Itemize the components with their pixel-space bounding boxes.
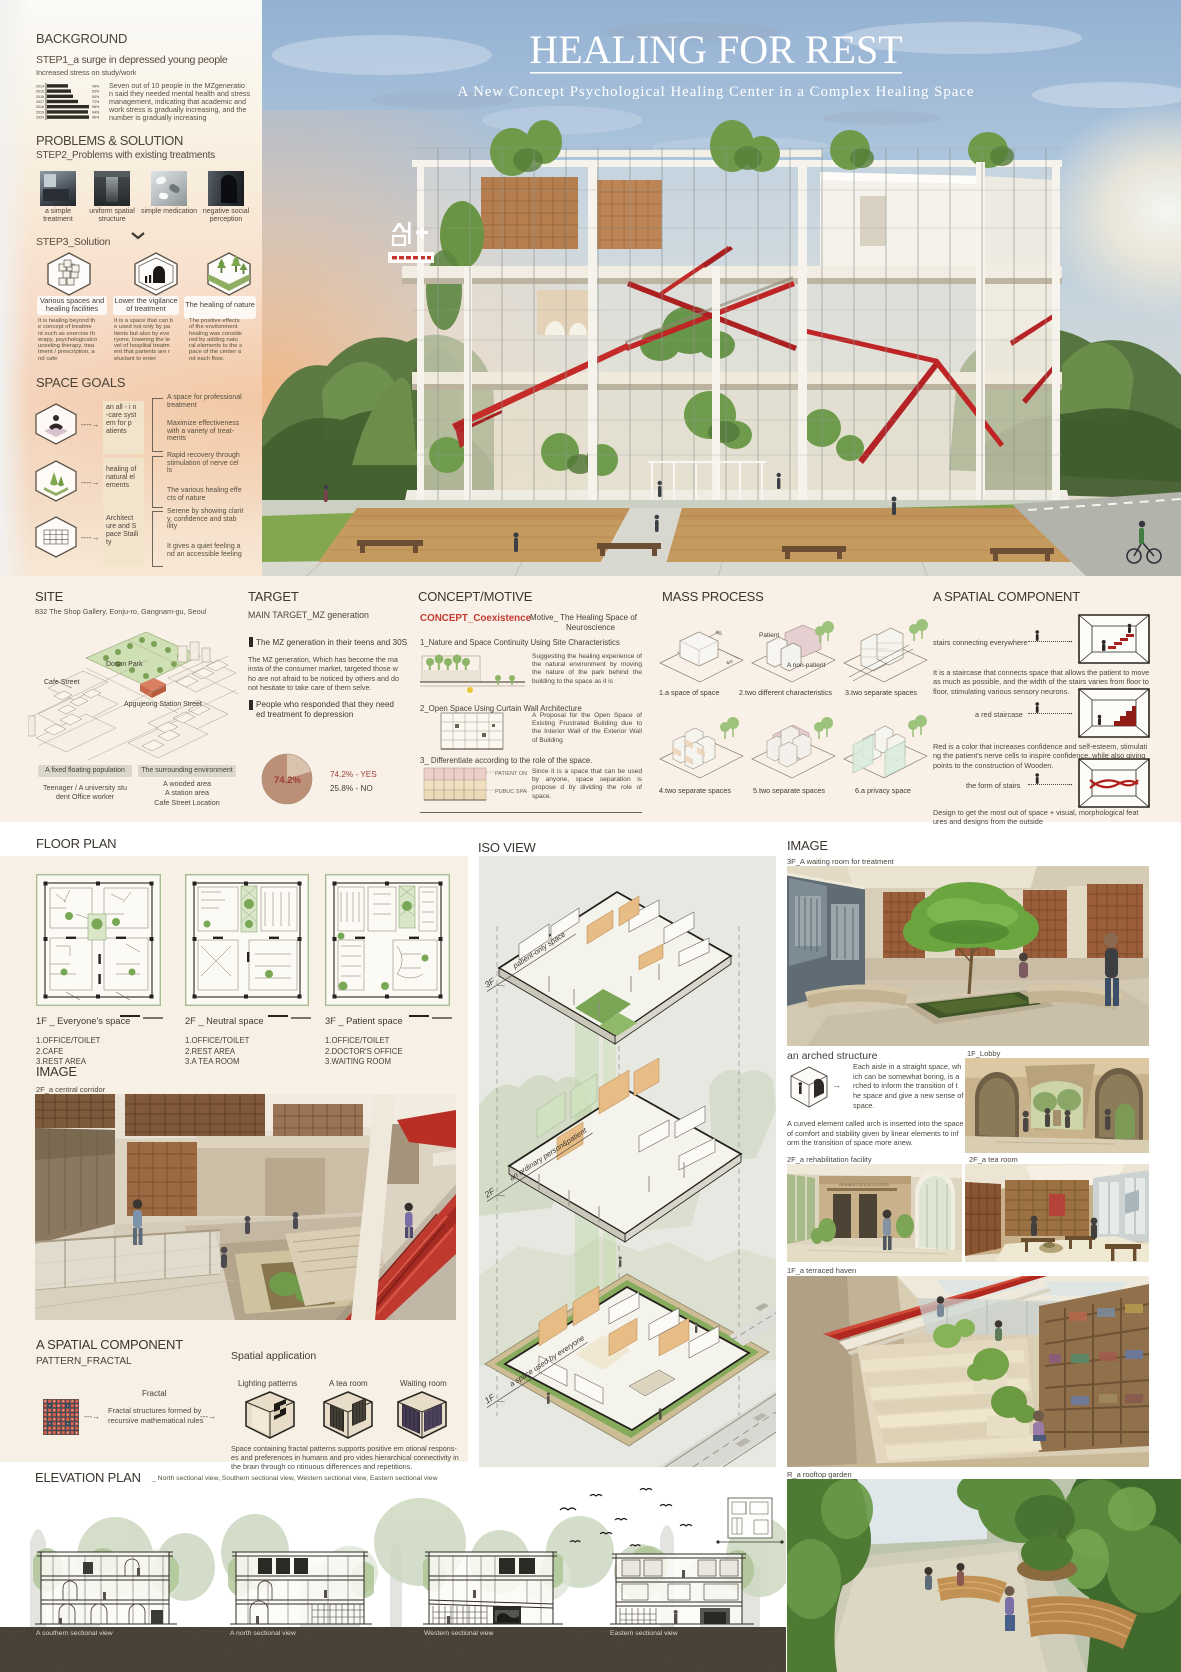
svg-text:1F: 1F bbox=[483, 1391, 497, 1405]
svg-text:49%: 49% bbox=[92, 84, 100, 88]
svg-text:2016: 2016 bbox=[36, 95, 44, 99]
svg-text:2.two different characteristic: 2.two different characteristics bbox=[739, 688, 832, 697]
svg-text:5.two separate spaces: 5.two separate spaces bbox=[753, 786, 825, 795]
svg-text:3.two separate spaces: 3.two separate spaces bbox=[845, 688, 917, 697]
svg-text:2019: 2019 bbox=[36, 110, 44, 114]
svg-text:2018: 2018 bbox=[36, 105, 44, 109]
svg-text:1.a space of space: 1.a space of space bbox=[659, 688, 719, 697]
svg-text:74.2%: 74.2% bbox=[274, 775, 301, 786]
svg-text:96%: 96% bbox=[92, 116, 100, 120]
svg-text:94%: 94% bbox=[92, 110, 100, 114]
svg-text:3F: 3F bbox=[483, 975, 497, 989]
svg-text:4m: 4m bbox=[714, 629, 723, 637]
svg-text:REHABILITATION CENTER: REHABILITATION CENTER bbox=[839, 1182, 889, 1187]
svg-text:Apgujeong Station Street: Apgujeong Station Street bbox=[124, 701, 202, 708]
svg-text:2015: 2015 bbox=[36, 90, 44, 94]
svg-text:2017: 2017 bbox=[36, 100, 44, 104]
svg-text:96%: 96% bbox=[92, 105, 100, 109]
svg-text:2020: 2020 bbox=[36, 116, 44, 120]
svg-text:Dosan Park: Dosan Park bbox=[106, 661, 143, 668]
svg-text:53%: 53% bbox=[92, 90, 100, 94]
svg-text:4.two separate spaces: 4.two separate spaces bbox=[659, 786, 731, 795]
svg-text:PUBUC SPACE .: PUBUC SPACE . bbox=[495, 789, 527, 795]
svg-text:54%: 54% bbox=[92, 95, 100, 99]
svg-text:A non-patient: A non-patient bbox=[787, 662, 826, 669]
svg-text:72%: 72% bbox=[92, 100, 100, 104]
svg-text:6.a privacy space: 6.a privacy space bbox=[855, 786, 911, 795]
svg-text:A New Concept Psychological He: A New Concept Psychological Healing Cent… bbox=[458, 84, 975, 100]
svg-text:HEALING FOR REST: HEALING FOR REST bbox=[529, 27, 902, 72]
svg-text:Cafe Street: Cafe Street bbox=[44, 679, 79, 686]
svg-text:Patient: Patient bbox=[759, 632, 779, 639]
svg-text:2014: 2014 bbox=[36, 84, 44, 88]
svg-text:PATIENT ONLY .: PATIENT ONLY . bbox=[495, 771, 527, 777]
